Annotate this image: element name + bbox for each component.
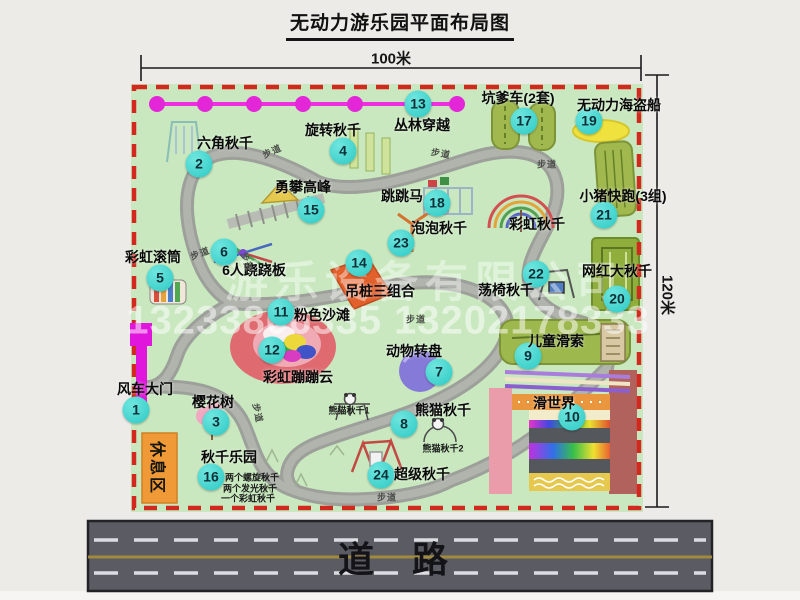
attraction-label-16: 秋千乐园 bbox=[201, 447, 257, 467]
marker-badge-15: 15 bbox=[298, 197, 325, 224]
marker-badge-20: 20 bbox=[604, 286, 631, 313]
attraction-label-4: 旋转秋千 bbox=[305, 120, 361, 140]
small-label-1: 熊猫秋千2 bbox=[422, 442, 463, 455]
attraction-label-2: 六角秋千 bbox=[197, 133, 253, 153]
attraction-label-14: 吊桩三组合 bbox=[345, 281, 415, 301]
attraction-label-11: 粉色沙滩 bbox=[294, 305, 350, 325]
attraction-label-3: 樱花树 bbox=[192, 392, 234, 412]
label-overlay: 1风车大门2六角秋千3樱花树4旋转秋千5彩虹滚筒66人跷跷板7动物转盘8熊猫秋千… bbox=[0, 0, 800, 600]
marker-badge-5: 5 bbox=[147, 265, 174, 292]
attraction-label-9: 儿童滑索 bbox=[528, 331, 584, 351]
walkway-label-7: 步道 bbox=[377, 491, 397, 504]
marker-badge-14: 14 bbox=[346, 250, 373, 277]
marker-badge-3: 3 bbox=[203, 409, 230, 436]
attraction-label-5: 彩虹滚筒 bbox=[125, 247, 181, 267]
attraction-label-7: 动物转盘 bbox=[386, 341, 442, 361]
walkway-label-1: 步道 bbox=[430, 145, 452, 161]
marker-badge-16: 16 bbox=[198, 464, 225, 491]
walkway-label-0: 步道 bbox=[260, 141, 284, 161]
marker-badge-24: 24 bbox=[368, 462, 395, 489]
rest-area-label: 休息区 bbox=[147, 441, 171, 495]
dimension-width-label: 100米 bbox=[371, 48, 411, 69]
walkway-label-2: 步道 bbox=[537, 158, 557, 171]
attraction-label-21: 小猪快跑(3组) bbox=[579, 186, 666, 206]
attraction-label-8: 熊猫秋千 bbox=[415, 400, 471, 420]
park-map-canvas: 游乐设备有限公司 13233806335 13202178333 1风车大门2六… bbox=[0, 0, 800, 600]
attraction-label-13: 丛林穿越 bbox=[394, 115, 450, 135]
small-label-0: 熊猫秋千1 bbox=[328, 404, 369, 417]
walkway-label-3: 步道 bbox=[188, 243, 211, 262]
attraction-label-1: 风车大门 bbox=[117, 379, 173, 399]
plain-label-0: 彩虹秋千 bbox=[509, 214, 565, 234]
marker-badge-18: 18 bbox=[424, 190, 451, 217]
small-label-4: 一个彩虹秋千 bbox=[221, 492, 275, 505]
marker-badge-4: 4 bbox=[330, 138, 357, 165]
marker-badge-13: 13 bbox=[405, 91, 432, 118]
attraction-label-20: 网红大秋千 bbox=[582, 261, 652, 281]
road-label: 道 路 bbox=[338, 531, 462, 583]
marker-badge-17: 17 bbox=[511, 108, 538, 135]
attraction-label-12: 彩虹蹦蹦云 bbox=[263, 367, 333, 387]
marker-badge-8: 8 bbox=[391, 411, 418, 438]
attraction-label-24: 超级秋千 bbox=[394, 464, 450, 484]
attraction-label-15: 勇攀高峰 bbox=[275, 177, 331, 197]
walkway-label-5: 步道 bbox=[406, 313, 426, 326]
attraction-label-22: 荡椅秋千 bbox=[478, 280, 534, 300]
dimension-height-label: 120米 bbox=[658, 275, 679, 315]
attraction-label-19: 无动力海盗船 bbox=[577, 95, 661, 115]
walkway-label-6: 步道 bbox=[250, 402, 267, 424]
attraction-label-10: 滑世界 bbox=[533, 393, 575, 413]
attraction-label-23: 泡泡秋千 bbox=[411, 218, 467, 238]
attraction-label-18: 跳跳马 bbox=[381, 186, 423, 206]
marker-badge-1: 1 bbox=[123, 397, 150, 424]
page-title: 无动力游乐园平面布局图 bbox=[286, 8, 514, 41]
marker-badge-7: 7 bbox=[426, 359, 453, 386]
marker-badge-11: 11 bbox=[268, 299, 295, 326]
attraction-label-17: 坑爹车(2套) bbox=[481, 88, 554, 108]
marker-badge-12: 12 bbox=[259, 337, 286, 364]
marker-badge-2: 2 bbox=[186, 151, 213, 178]
